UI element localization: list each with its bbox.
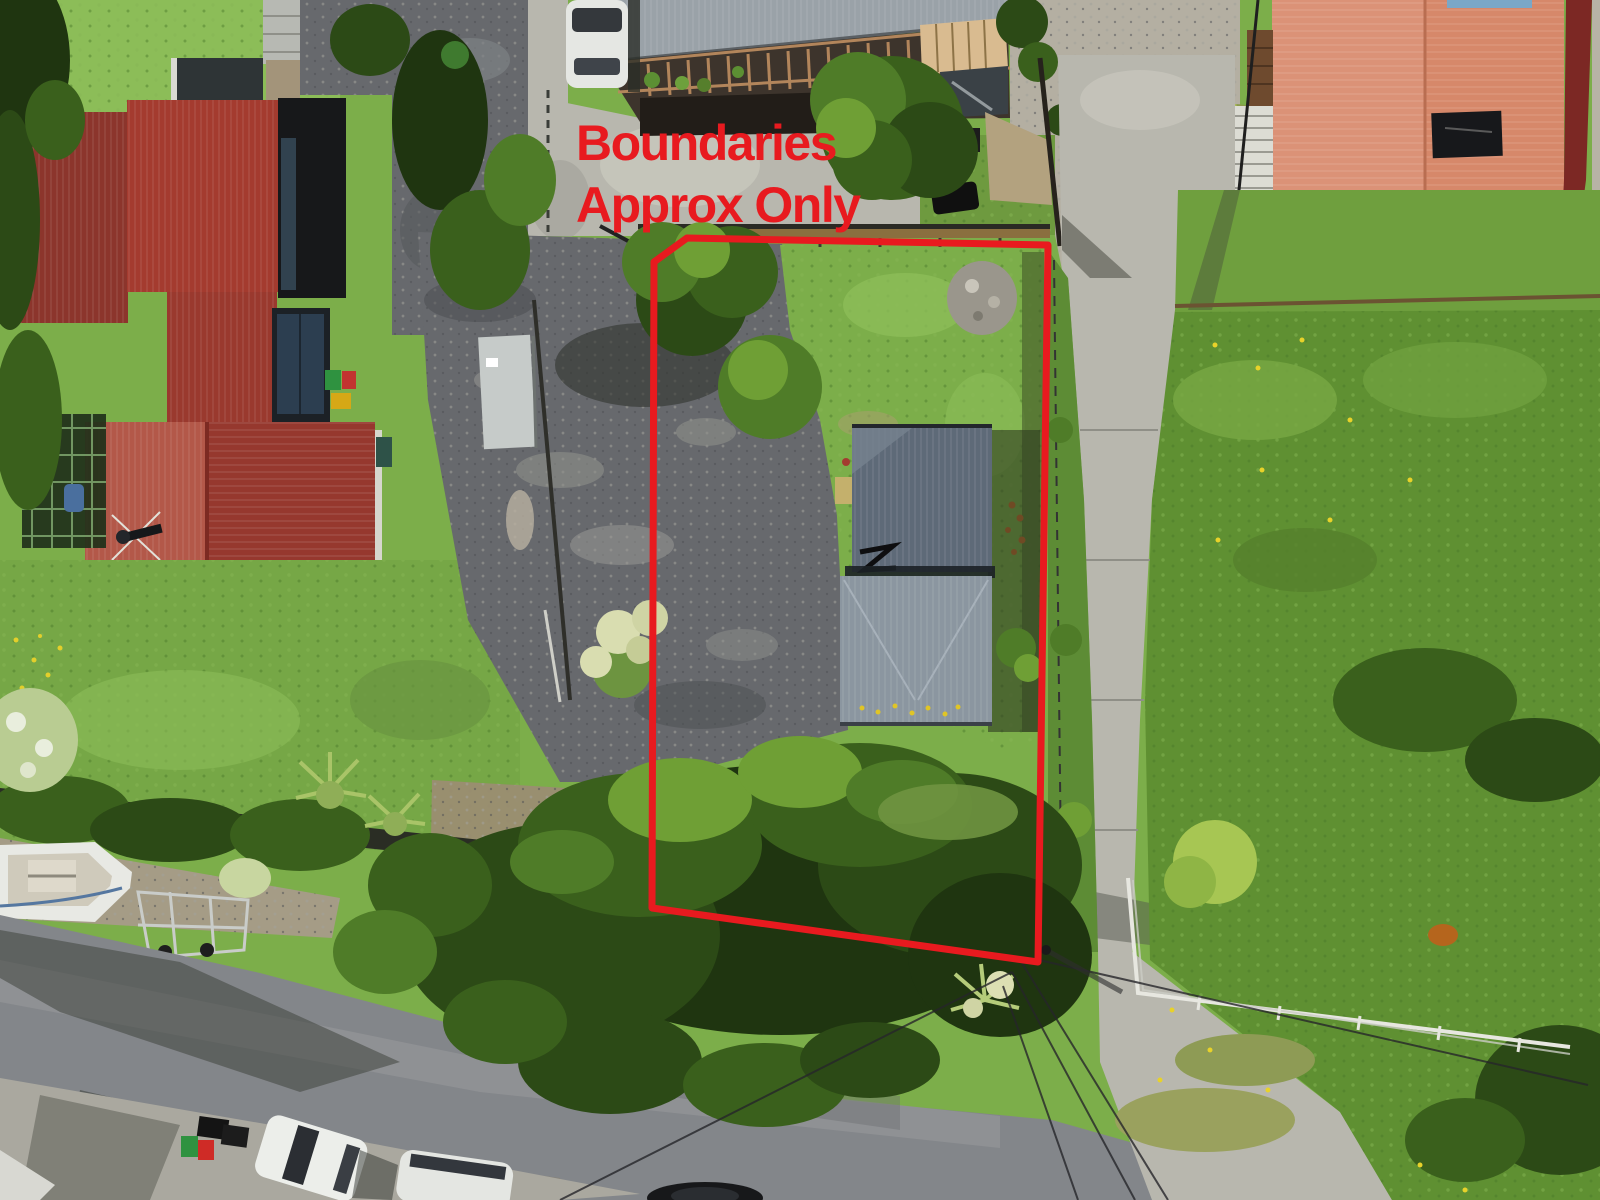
chimney-hatch [1431, 111, 1503, 158]
subject-house [835, 424, 1042, 732]
rust-patch [1428, 924, 1458, 946]
yellow-object [835, 477, 852, 504]
blue-strip [1447, 0, 1532, 8]
tan-panels [920, 18, 1008, 74]
green-bin [181, 1136, 198, 1157]
aerial-photo: Boundaries Approx Only [0, 0, 1600, 1200]
blue-barrel [64, 484, 84, 512]
yellow-crate [331, 393, 351, 409]
annotation-line1: Boundaries [576, 115, 836, 171]
rock-pile [947, 261, 1017, 335]
parked-white-car-top [566, 0, 640, 92]
solar-strip [281, 138, 296, 290]
red-bin [342, 371, 356, 389]
paver-path [263, 0, 303, 64]
red-bin [198, 1140, 214, 1160]
green-bin [325, 370, 341, 390]
small-shed [478, 335, 536, 450]
aerial-photo-canvas: Boundaries Approx Only [0, 0, 1600, 1200]
annotation-line2: Approx Only [576, 177, 861, 233]
